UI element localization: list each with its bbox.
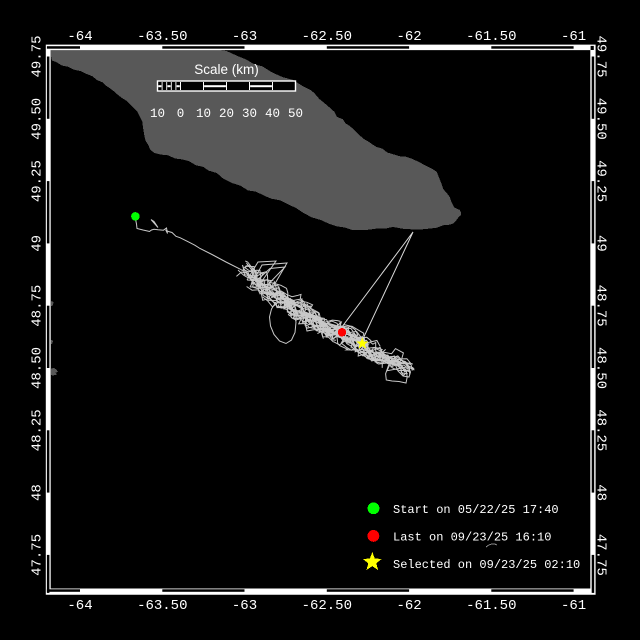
svg-text:48: 48 [593, 484, 609, 501]
svg-text:48.25: 48.25 [593, 409, 609, 451]
svg-text:Start on 05/22/25 17:40: Start on 05/22/25 17:40 [393, 503, 559, 517]
svg-text:-62: -62 [396, 598, 421, 614]
svg-text:49.50: 49.50 [593, 98, 609, 140]
svg-text:0: 0 [177, 107, 185, 121]
svg-text:49.75: 49.75 [593, 35, 609, 77]
svg-text:-63.50: -63.50 [137, 29, 187, 45]
svg-text:-64: -64 [67, 598, 92, 614]
svg-text:47.75: 47.75 [30, 534, 46, 576]
svg-text:49.25: 49.25 [593, 160, 609, 202]
svg-text:-61: -61 [561, 598, 586, 614]
svg-text:10: 10 [150, 107, 165, 121]
svg-text:-61.50: -61.50 [466, 598, 516, 614]
svg-text:-62.50: -62.50 [302, 598, 352, 614]
svg-text:-62: -62 [396, 29, 421, 45]
svg-text:-61.50: -61.50 [466, 29, 516, 45]
svg-text:47.75: 47.75 [593, 534, 609, 576]
svg-text:40: 40 [265, 107, 280, 121]
svg-text:-62.50: -62.50 [302, 29, 352, 45]
svg-text:-63: -63 [232, 598, 257, 614]
svg-text:30: 30 [242, 107, 257, 121]
svg-text:48.50: 48.50 [593, 347, 609, 389]
svg-text:48.50: 48.50 [30, 347, 46, 389]
svg-text:-61: -61 [561, 29, 586, 45]
svg-text:48: 48 [30, 484, 46, 501]
svg-text:20: 20 [219, 107, 234, 121]
svg-text:48.25: 48.25 [30, 409, 46, 451]
svg-text:48.75: 48.75 [593, 285, 609, 327]
svg-text:Last on 09/23/25 16:10: Last on 09/23/25 16:10 [393, 530, 551, 544]
svg-text:-63.50: -63.50 [137, 598, 187, 614]
svg-text:Selected on 09/23/25 02:10: Selected on 09/23/25 02:10 [393, 558, 580, 572]
svg-text:49.25: 49.25 [30, 160, 46, 202]
svg-text:Scale (km): Scale (km) [194, 62, 259, 77]
svg-text:49.75: 49.75 [30, 35, 46, 77]
svg-text:10: 10 [196, 107, 211, 121]
svg-text:48.75: 48.75 [30, 285, 46, 327]
svg-text:-64: -64 [67, 29, 92, 45]
svg-text:49: 49 [593, 235, 609, 252]
svg-text:50: 50 [288, 107, 303, 121]
svg-text:49.50: 49.50 [30, 98, 46, 140]
svg-text:49: 49 [30, 235, 46, 252]
svg-text:-63: -63 [232, 29, 257, 45]
